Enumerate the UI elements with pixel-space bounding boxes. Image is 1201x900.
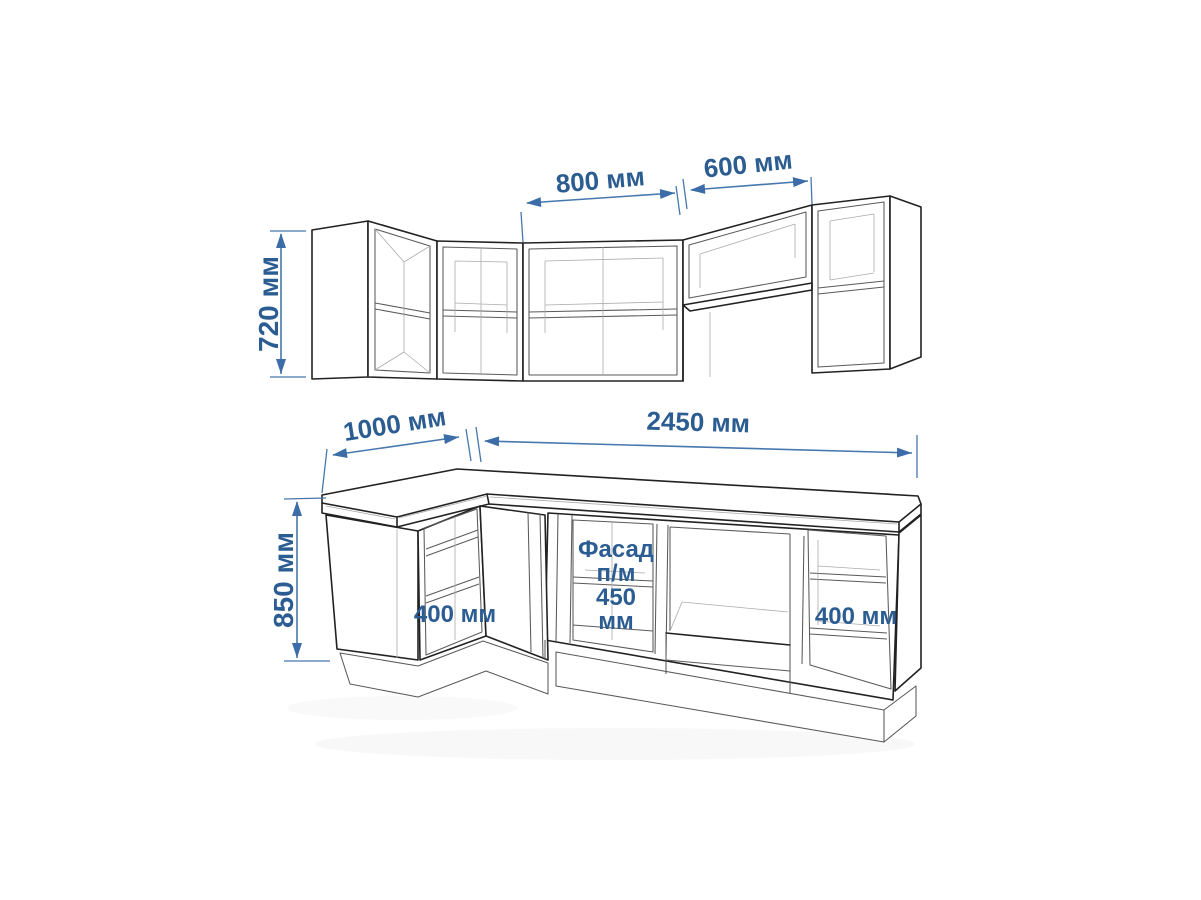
- upper-right-side-panel: [890, 196, 921, 369]
- left-shelf-label: 400 мм: [414, 601, 496, 628]
- upper-left-side-panel: [312, 221, 368, 379]
- upper-height-label: 720 мм: [253, 256, 284, 352]
- base-height-label: 850 мм: [268, 532, 299, 628]
- shadow-corner: [287, 696, 517, 720]
- base-right-side-panel: [895, 515, 921, 691]
- corner-angled-door: [480, 506, 548, 660]
- upper-600-label: 600 мм: [702, 144, 794, 183]
- facade-label-line-3: 450: [596, 584, 636, 611]
- corner-left-door: [326, 515, 418, 660]
- kitchen-drawing: 720 мм 800 мм 600 мм 1000 мм 2450 мм 850…: [0, 0, 1201, 900]
- dim-line-2450: [485, 441, 912, 453]
- corner-open-section: [418, 506, 486, 660]
- facade-label-line-1: Фасад: [578, 536, 654, 563]
- shadow-main: [315, 728, 915, 760]
- base-length-label: 2450 мм: [646, 406, 750, 439]
- facade-label-line-4: мм: [598, 608, 634, 635]
- kitchen-drawing-page: 720 мм 800 мм 600 мм 1000 мм 2450 мм 850…: [0, 0, 1201, 900]
- upper-hood-cabinet-600: [683, 205, 812, 305]
- facade-label-line-2: п/м: [597, 560, 636, 587]
- right-shelf-label: 400 мм: [815, 603, 897, 630]
- upper-cabinets-drawing: [312, 196, 921, 381]
- countertop: [322, 469, 921, 522]
- upper-800-label: 800 мм: [555, 161, 646, 199]
